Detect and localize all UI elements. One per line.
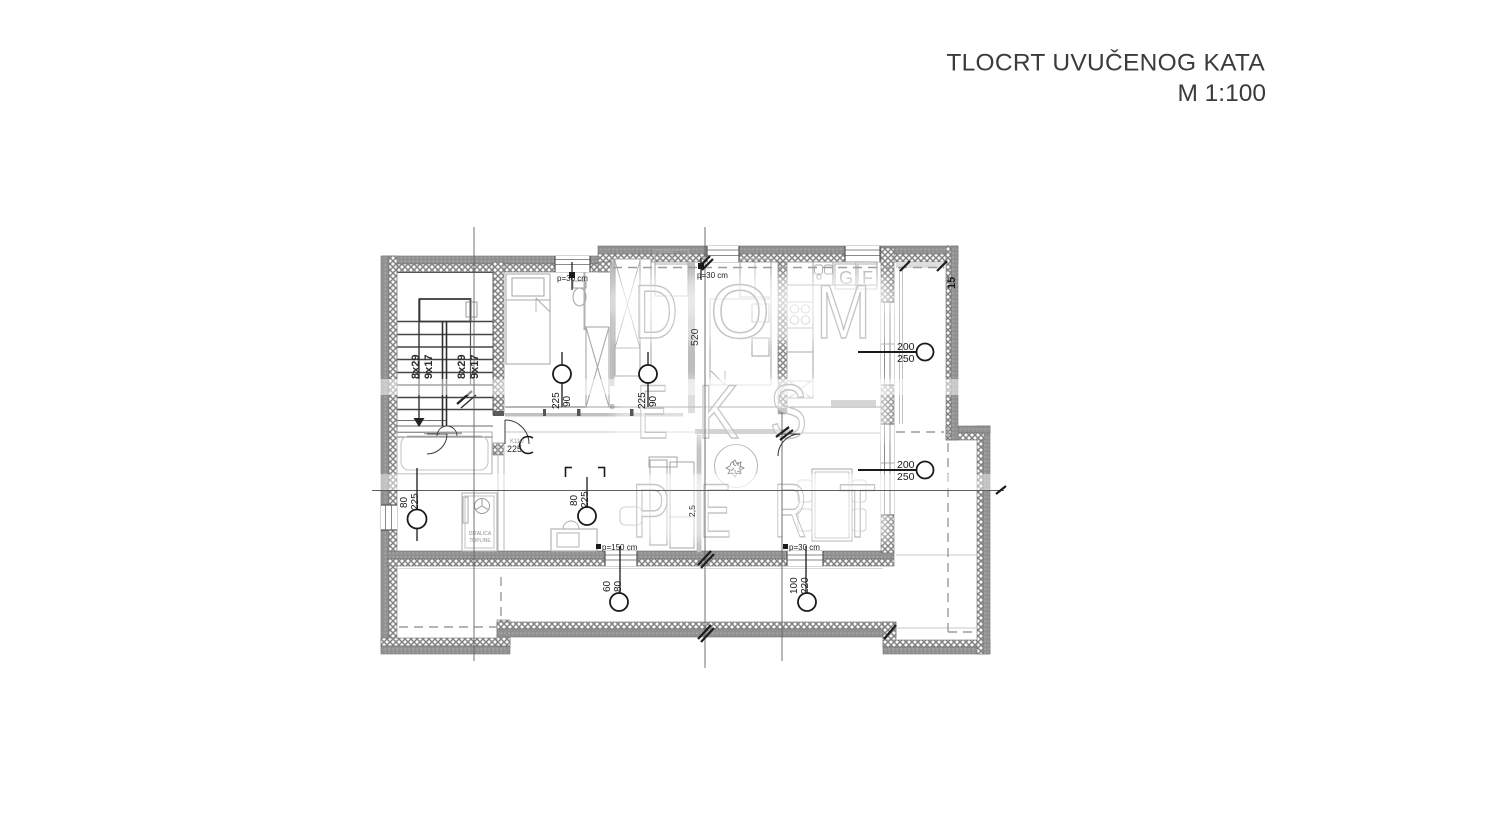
svg-text:220: 220 bbox=[800, 577, 811, 594]
svg-text:p=30 cm: p=30 cm bbox=[697, 271, 728, 280]
svg-text:D: D bbox=[634, 270, 678, 355]
svg-text:R: R bbox=[774, 469, 807, 554]
svg-text:9x17: 9x17 bbox=[469, 355, 481, 379]
svg-text:60: 60 bbox=[602, 580, 613, 592]
svg-text:225: 225 bbox=[410, 493, 421, 510]
svg-text:M 1:100: M 1:100 bbox=[1177, 80, 1266, 107]
svg-text:p=30 cm: p=30 cm bbox=[557, 274, 588, 283]
svg-text:200: 200 bbox=[897, 341, 915, 353]
svg-text:8x29: 8x29 bbox=[456, 355, 468, 379]
svg-text:100: 100 bbox=[789, 577, 800, 594]
svg-text:225: 225 bbox=[637, 392, 648, 409]
svg-text:M: M bbox=[816, 270, 871, 355]
svg-text:80: 80 bbox=[399, 496, 410, 508]
svg-text:520: 520 bbox=[689, 328, 701, 346]
svg-text:DIZALICA: DIZALICA bbox=[469, 531, 492, 537]
svg-text:200: 200 bbox=[897, 459, 915, 471]
svg-text:K110: K110 bbox=[510, 439, 524, 445]
svg-text:O: O bbox=[710, 270, 770, 355]
svg-text:225: 225 bbox=[551, 392, 562, 409]
svg-text:225: 225 bbox=[507, 444, 522, 454]
svg-text:225: 225 bbox=[580, 491, 591, 508]
svg-text:P: P bbox=[632, 469, 670, 554]
svg-text:T: T bbox=[839, 469, 876, 554]
svg-text:9x17: 9x17 bbox=[423, 355, 435, 379]
svg-text:80: 80 bbox=[613, 580, 624, 592]
svg-text:90: 90 bbox=[648, 395, 659, 407]
svg-text:2,5: 2,5 bbox=[687, 505, 697, 517]
svg-text:15: 15 bbox=[946, 277, 958, 289]
svg-text:p=30 cm: p=30 cm bbox=[789, 543, 820, 552]
svg-text:S: S bbox=[770, 370, 807, 455]
svg-text:250: 250 bbox=[897, 353, 915, 365]
svg-text:p=150 cm: p=150 cm bbox=[602, 543, 638, 552]
svg-text:TLOCRT UVUČENOG KATA: TLOCRT UVUČENOG KATA bbox=[946, 49, 1265, 77]
svg-text:250: 250 bbox=[897, 471, 915, 483]
svg-text:TOPLINE: TOPLINE bbox=[469, 538, 491, 544]
svg-text:K: K bbox=[698, 370, 739, 455]
svg-text:90: 90 bbox=[562, 395, 573, 407]
svg-text:80: 80 bbox=[569, 494, 580, 506]
svg-text:8x29: 8x29 bbox=[410, 355, 422, 379]
